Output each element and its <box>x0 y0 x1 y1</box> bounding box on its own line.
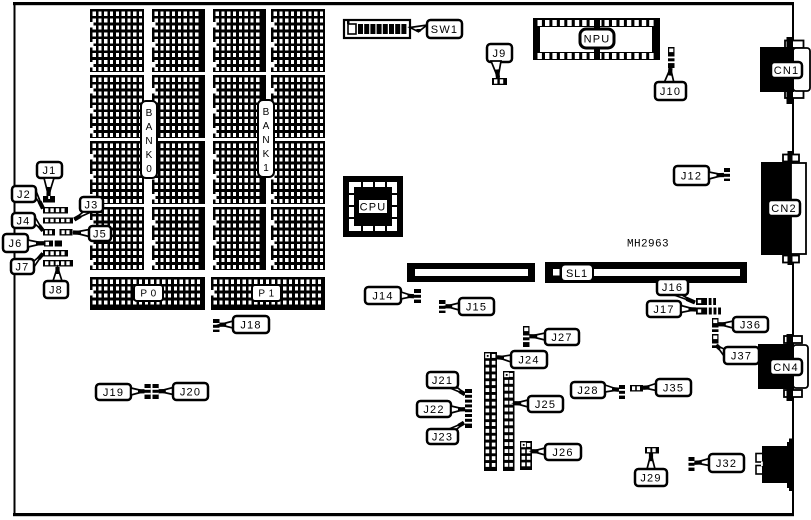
svg-text:J1: J1 <box>42 165 56 177</box>
svg-text:J25: J25 <box>535 399 556 411</box>
svg-text:J27: J27 <box>551 332 572 344</box>
svg-text:B: B <box>146 108 153 119</box>
svg-text:J4: J4 <box>16 215 30 227</box>
svg-text:N: N <box>145 136 152 147</box>
svg-text:J15: J15 <box>466 301 487 313</box>
svg-text:CN1: CN1 <box>774 65 800 77</box>
svg-text:CPU: CPU <box>360 202 387 214</box>
svg-text:J14: J14 <box>372 290 393 302</box>
svg-text:P 1: P 1 <box>258 289 274 300</box>
svg-text:J20: J20 <box>180 386 201 398</box>
svg-text:MH2963: MH2963 <box>627 239 669 251</box>
svg-text:0: 0 <box>146 164 152 175</box>
svg-text:J29: J29 <box>640 472 661 484</box>
svg-text:J2: J2 <box>17 189 31 201</box>
svg-text:CN2: CN2 <box>771 203 797 215</box>
svg-text:J5: J5 <box>93 228 107 240</box>
svg-text:1: 1 <box>263 163 269 174</box>
svg-text:J28: J28 <box>577 385 598 397</box>
svg-text:SL1: SL1 <box>566 268 588 280</box>
svg-text:CN4: CN4 <box>773 362 799 374</box>
svg-text:J36: J36 <box>740 319 761 331</box>
svg-text:J23: J23 <box>432 431 453 443</box>
svg-text:J8: J8 <box>49 284 63 296</box>
svg-text:J24: J24 <box>518 354 539 366</box>
svg-text:J26: J26 <box>552 447 573 459</box>
svg-text:J17: J17 <box>653 304 674 316</box>
svg-text:J7: J7 <box>15 261 29 273</box>
svg-text:J9: J9 <box>492 48 506 60</box>
svg-text:J18: J18 <box>240 319 261 331</box>
svg-text:K: K <box>146 150 153 161</box>
svg-text:J19: J19 <box>103 387 124 399</box>
svg-text:J3: J3 <box>84 199 98 211</box>
svg-text:P 0: P 0 <box>140 289 156 300</box>
svg-text:K: K <box>263 149 270 160</box>
svg-text:J10: J10 <box>660 86 681 98</box>
svg-text:J16: J16 <box>662 282 683 294</box>
svg-text:J32: J32 <box>716 458 737 470</box>
svg-text:J21: J21 <box>432 375 453 387</box>
svg-text:A: A <box>263 121 270 132</box>
svg-text:N: N <box>262 135 269 146</box>
svg-text:J6: J6 <box>8 238 22 250</box>
svg-text:A: A <box>146 122 153 133</box>
svg-text:SW1: SW1 <box>431 24 458 36</box>
svg-text:J35: J35 <box>663 382 684 394</box>
svg-text:NPU: NPU <box>584 33 611 45</box>
svg-text:B: B <box>263 107 270 118</box>
svg-text:J37: J37 <box>731 350 752 362</box>
svg-text:J22: J22 <box>423 404 444 416</box>
svg-text:J12: J12 <box>681 170 702 182</box>
